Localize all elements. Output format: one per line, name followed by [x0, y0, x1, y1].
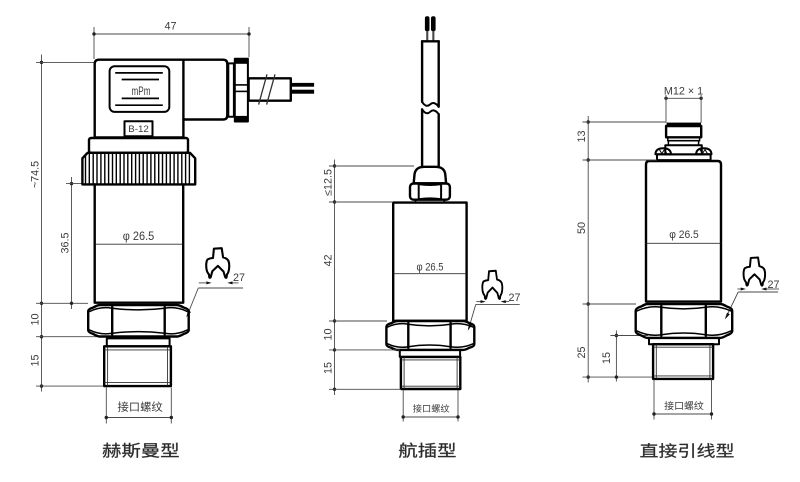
svg-text:B-12: B-12: [128, 124, 149, 135]
svg-text:47: 47: [164, 21, 176, 33]
svg-text:27: 27: [508, 292, 520, 304]
svg-text:mPm: mPm: [132, 84, 151, 98]
svg-text:≤12.5: ≤12.5: [323, 169, 335, 196]
svg-text:φ 26.5: φ 26.5: [669, 229, 699, 241]
svg-text:25: 25: [576, 346, 588, 358]
svg-text:42: 42: [323, 254, 335, 266]
svg-text:φ 26.5: φ 26.5: [417, 262, 444, 274]
svg-text:M12 × 1: M12 × 1: [664, 86, 703, 98]
svg-text:10: 10: [323, 328, 335, 340]
svg-text:φ 26.5: φ 26.5: [123, 231, 155, 243]
svg-text:27: 27: [767, 279, 779, 291]
svg-text:15: 15: [323, 362, 335, 374]
svg-text:36.5: 36.5: [60, 232, 72, 253]
svg-text:~74.5: ~74.5: [30, 161, 42, 188]
svg-text:10: 10: [30, 313, 42, 325]
svg-text:27: 27: [233, 272, 245, 284]
svg-text:13: 13: [576, 130, 588, 142]
svg-text:15: 15: [30, 354, 42, 366]
svg-text:50: 50: [576, 222, 588, 234]
svg-text:15: 15: [601, 352, 613, 364]
